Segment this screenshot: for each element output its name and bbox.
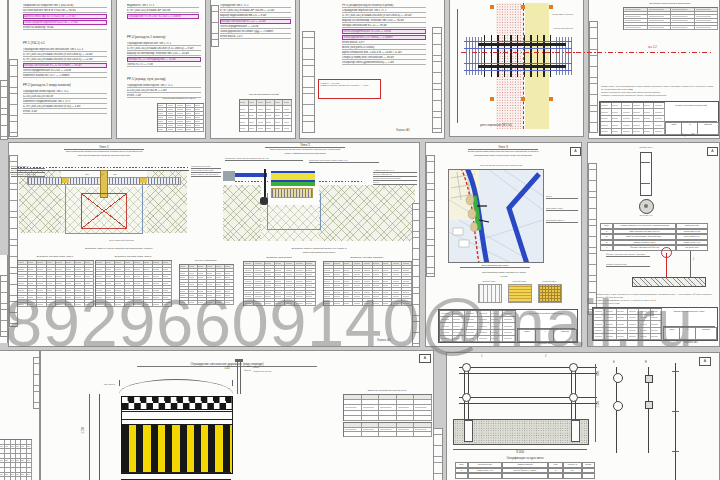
stamp-cell-strip — [432, 27, 442, 133]
dimension-column — [457, 9, 459, 123]
node1-subtitle2: тротуарной плиткой (обратная засыпка тра… — [29, 154, 179, 157]
spec-block: Ограждение переносное Тип 1 Тс 1а-787 (3… — [127, 41, 201, 67]
sheet-top-right: Ведомость потребности в материалах Приме… — [588, 0, 720, 139]
node3-subtitle: Схема расстановки элементов сигнального … — [440, 150, 566, 153]
node2-caption2: (длина определяется по месту) — [259, 251, 379, 254]
spec-line: Фонарь сигнальный ФС-12 на стойке — 36 ш… — [23, 63, 107, 68]
mini-title-block — [239, 99, 292, 132]
grid-cell — [195, 128, 204, 132]
title-block-name: Схема установки ограждений — [665, 104, 717, 122]
rail-line — [122, 419, 232, 420]
axis-label: ось 2-2 — [648, 46, 657, 49]
arc-end-tick — [119, 380, 120, 386]
red-axis-centerline — [461, 52, 711, 53]
spec-line: в 787 (306-541) и башм.-БР 340 вв — 12 ш… — [220, 9, 291, 13]
spec-line: Щиты сплошные инв. 2,0х1,6 м — 24 шт / 1… — [342, 51, 426, 55]
spec-block: Уширение а/б покрытия тип 1 (h=0,56 м)а/… — [23, 3, 107, 30]
spec-line: а-787 (306-541) и башм.180-808 (п.363-18… — [23, 58, 107, 62]
callout-label: сетка 5Вр1 100х100 — [552, 13, 582, 16]
red-note-line: 2 Длина забора (временное огражд.) — 62 … — [321, 84, 379, 87]
table-caption: Ведомость объемов (итоговая) — [323, 256, 411, 259]
detail-circle — [613, 373, 623, 383]
grid-cell — [344, 432, 362, 437]
grid-cell — [362, 416, 380, 421]
spec-block: Ограждение инвентарное Тип 2 Тс 2а-250 (… — [127, 83, 201, 98]
partial-table — [0, 439, 32, 480]
spec-line: а-250 (244-141) и 560-М — 2 шт — [127, 89, 201, 93]
spec-line: Барьер со световозвр. пленкой ЛВО 250 — … — [342, 19, 426, 23]
table-caption: Ведомость объемов работ. Этап 1 — [17, 255, 93, 258]
backfill-crossed-box — [81, 193, 127, 229]
spec-line: а-787 (306-541) и башм.180-808 (п.11-180… — [127, 47, 201, 51]
curb-block — [223, 171, 235, 181]
spec-line: а/б плотный м/з тип Б М II h=5 см — 96 м… — [23, 9, 107, 13]
swatch-scale: М 1:20 — [462, 275, 546, 278]
spec-line: Ограждение 97-ЛК 2 м; ПС-340 — 1 компл — [127, 14, 199, 19]
title-block: Схема установки ограждений Лист 3 Листов — [599, 101, 719, 136]
spec-heading: РР-5 (огражд. пути, расход) — [127, 77, 166, 81]
map-top-labels: Тротуар Линия сигнального ограждения — [454, 164, 548, 167]
cell — [468, 473, 502, 479]
dim-label: 750 — [692, 257, 695, 261]
format-label: Формат А3 — [396, 129, 410, 132]
corner-marker — [549, 5, 553, 9]
post-line — [237, 362, 238, 394]
node2-subtitle2: части с асфальтобетонным покрытием — [235, 152, 375, 155]
partial-sheet-bottom-left — [0, 350, 40, 480]
spec-block: Всего (без учета III этапа):Щиты сплошны… — [342, 45, 426, 65]
table-caption: Ведомость материалов — [243, 256, 315, 259]
cell — [582, 473, 595, 479]
grid-cell — [397, 432, 415, 437]
grid-cell — [601, 129, 612, 135]
detail-circle — [613, 401, 623, 411]
stamp-cell-strip — [426, 155, 435, 277]
node3-subtitle2: производства работ на проезжей части (по… — [440, 154, 566, 157]
swatch-label: Желтый цвет — [506, 280, 532, 283]
road-edge-blue-2 — [509, 174, 539, 262]
stamp-cell-strip — [589, 21, 598, 133]
sheet-spec-3: Ограждение тип 1 Тс 2в 787 (306-541) и б… — [210, 0, 296, 139]
dim-label: 150 — [85, 173, 89, 176]
grid-cell — [176, 128, 185, 132]
spec-line: Фонарь сигнальный ФС-12 — 24 шт — [220, 19, 291, 24]
rail-line — [122, 411, 232, 412]
joint-circle — [569, 393, 578, 402]
callout-label: Стойка ограждения — [606, 263, 650, 267]
spec-line: Фонарь сигнальный ФС-12 — 96 шт — [342, 24, 426, 28]
cell — [548, 473, 563, 479]
post-slot — [464, 420, 473, 442]
joint-circle — [462, 363, 471, 372]
trench-outline — [267, 193, 321, 230]
spec-line: Всего (без учета III этапа): — [342, 46, 426, 50]
grid-cell — [644, 129, 655, 135]
backfill-label: зона обратной засыпки — [109, 239, 169, 242]
spec-heading: РР-1 (УШ-1) п.1 — [23, 41, 45, 45]
spec-block: Ведомость Тип 1 Тс 3в 787 (306-541) и ба… — [127, 3, 199, 19]
grid-cell — [379, 432, 397, 437]
map-labels-right: ГазонПроезжая частьБортовой камень — [546, 187, 578, 223]
node2-subtitle: Узел сопряжения временного дорожного огр… — [235, 148, 375, 151]
stamp-cell-strip — [33, 357, 40, 409]
spec-line: РР-6 (общий расход по объекту в целом) — [342, 4, 426, 8]
spec-row-empty — [455, 473, 595, 479]
table-caption: Расход материалов на 1 звено — [155, 97, 203, 100]
cell — [502, 473, 549, 479]
spec-block: Ограждение тип 1 Тс 2в 787 (306-541) и б… — [220, 3, 291, 39]
height-dim-label: 1 100 — [597, 401, 600, 408]
format-corner-mark: А — [570, 147, 581, 156]
cell — [563, 473, 582, 479]
ground-hatch-right — [319, 185, 415, 241]
spec-line: Ограждение инвентарное Тип 2 Тс-1 — [23, 90, 107, 94]
spec-line: Опоры (стойки) инв. сигнальные — 48 шт — [342, 56, 426, 60]
spec-line: Ограждение тип 1 Тс 2 — [220, 4, 291, 8]
layer-green — [271, 182, 315, 186]
corner-marker — [521, 97, 525, 101]
blue-bar-line — [464, 70, 572, 71]
red-note-2: (размер по месту) — [253, 370, 299, 373]
callout-label: Борт. камень БР 100.20.8 — [191, 173, 221, 177]
post-section-circle — [639, 199, 654, 214]
grid-cell — [186, 128, 195, 132]
sheet-spec-2: Ведомость Тип 1 Тс 3в 787 (306-541) и ба… — [116, 0, 206, 139]
spec-line: а-787 (306-541) и башм.180-808 (п.349-18… — [342, 14, 426, 18]
note-paragraph: Примечание: при производстве работ вблиз… — [601, 85, 713, 97]
drawing-collage-canvas: Уширение а/б покрытия тип 1 (h=0,56 м)а/… — [0, 0, 720, 480]
grid-cell — [362, 432, 380, 437]
tick — [672, 371, 679, 372]
underlined-callout: Покрытие проезжей части (лист 7.1) — [309, 159, 379, 163]
foundation-block — [453, 419, 589, 445]
detail-label: В — [645, 361, 647, 364]
anchor-post — [264, 169, 266, 197]
spec-line: Барьер водоналивной БВ-2,0 — 8 шт — [220, 14, 291, 18]
callout-label: Грунт — [373, 181, 417, 185]
post-detail-b: Б — [611, 361, 627, 461]
site-plan-map — [448, 169, 544, 263]
anchor-foot — [260, 197, 268, 205]
spec-line: а-787 (306-541) и башм.180-808 (п.16) — … — [23, 105, 107, 109]
cell — [455, 473, 468, 479]
spec-line: Знаки дорожные (I-IV этапы) — 1 компл — [342, 35, 426, 40]
spec-line: а-787 (306-541) и башм.180-808 (п.349-18… — [23, 53, 107, 57]
grid-cell — [624, 26, 648, 30]
spec-line: Барьер со световозвр. пленкой ЛВО 250 — … — [127, 52, 201, 56]
spec-line: в 787 (306-541) и башм.-БР 340 вв — [127, 9, 199, 13]
blue-bar-line — [464, 41, 572, 42]
spec-line: Итого: 4 шт — [23, 110, 107, 114]
stamp-cell-strip — [0, 80, 8, 140]
grid-cell — [240, 126, 249, 132]
node2-labels-right: Асфальтобетон h=5Щебень фр.20-40Песок ср… — [373, 169, 417, 185]
parts-table: Поз. Наименование и техническая характер… — [600, 223, 708, 251]
dim-label: 60 — [101, 173, 104, 176]
barrier-elements-table — [343, 394, 432, 421]
section-caption: Сечение 1-1 — [626, 214, 666, 217]
grid-cell — [654, 129, 665, 135]
spec-line: Итого масса: 2,4 т — [220, 35, 291, 39]
dim-label: 150 — [113, 173, 117, 176]
detail-post-line — [675, 363, 676, 480]
yellow-black-stripe-panel — [121, 424, 233, 474]
elevation-label: отм. верха — [85, 383, 115, 386]
blue-band-left — [235, 173, 267, 177]
rail-band — [121, 408, 233, 424]
node2-caption: Ведомость замены дорожной одежды на учас… — [259, 247, 379, 250]
format-label: Формат А3 — [681, 134, 695, 137]
grid-cell — [283, 126, 292, 132]
stamp-cell-strip — [433, 428, 443, 480]
corner-marker — [549, 97, 553, 101]
watermark-text: 89296609140@mail.ru — [5, 289, 693, 357]
red-height-line — [99, 394, 100, 480]
layer-yellow — [271, 173, 315, 180]
sheet-plan-rebar: сетка 5Вр1 100х100 лента сигнальная узел… — [449, 0, 584, 137]
spec-line: Знаки дорожные по схеме ОДД — 1 компл — [220, 30, 291, 34]
table-caption: Элементы ограждения (расход ЛКМ) — [343, 389, 431, 392]
base-band — [121, 472, 231, 480]
swatch-label: Белый цвет — [476, 280, 502, 283]
grid-cell — [379, 416, 397, 421]
node1-labels-right: Сигнальная лентаПодстилающий слойБорт. к… — [191, 165, 221, 177]
spec-line: Лента оградительная ЛО-250 — 250 м — [23, 69, 107, 73]
red-lamp-ring — [661, 247, 672, 258]
post-caption: Стойка СО-1 — [624, 146, 668, 149]
spec-line: Уширение а/б покрытия тип 1 (h=0,56 м) — [23, 4, 107, 8]
grid-cell — [622, 129, 633, 135]
barrier-elements-table-2 — [343, 422, 432, 437]
drawing-caption: узел сопряжения (М 1:50) — [480, 124, 550, 127]
spec-line: Ведомость Тип 1 Тс 3 — [127, 4, 199, 8]
red-dotted-row-right — [319, 181, 363, 182]
spec-block: Ограждение переносное сигнальное Тип 1 С… — [23, 47, 107, 78]
height-dim-label: 1 200 — [82, 427, 85, 434]
joint-circle — [462, 393, 471, 402]
grid-cell — [671, 26, 695, 30]
node2-drawing: Асфальтобетон h=5Щебень фр.20-40Песок ср… — [223, 165, 419, 245]
grid-cell — [257, 126, 266, 132]
swatch-caption: Тип раскраски щитов (сигнальные цвета) — [462, 271, 546, 274]
node1-labels-left: Бортовой каменьБР 100.30.15Восстановл. п… — [11, 165, 45, 177]
spec-table: Поз. Обозначение Наименование Кол. Масса… — [455, 462, 595, 479]
site-plan-svg — [449, 170, 543, 262]
grid-cell — [648, 26, 672, 30]
grid-cell — [249, 126, 258, 132]
sheets-label: Листов — [695, 327, 717, 340]
spec-line: Генератор света (дополнительно) — 1 шт — [342, 61, 426, 65]
stamp-caption: Расход материалов (общий) — [237, 93, 291, 96]
post-slot — [571, 420, 580, 442]
blue-bar-line — [464, 63, 572, 64]
materials-table — [623, 7, 718, 30]
grid-cell — [695, 26, 719, 30]
sand-tick-band — [271, 188, 313, 198]
red-note-box: 1 Всего — 547 м22 Длина забора (временно… — [318, 79, 381, 99]
grid-cell — [414, 416, 432, 421]
stamp-cell-strip — [9, 59, 18, 137]
post-line — [240, 362, 241, 394]
grid-cell — [612, 129, 623, 135]
grid-cell — [344, 416, 362, 421]
spec-line: Щебень М800 фр.40-70 h=30 см — 29 м3 — [23, 14, 107, 19]
sheets-label: Листов — [697, 122, 719, 135]
blue-bar-line — [464, 48, 572, 49]
corner-marker — [490, 97, 494, 101]
detail-square — [645, 401, 653, 409]
post-detail-tall — [671, 359, 683, 480]
callout-label: лента сигнальная — [554, 27, 582, 30]
red-note: навес — [253, 366, 299, 369]
grid-cell — [414, 432, 432, 437]
detail-label: Б — [613, 361, 615, 364]
spec-heading: РР-4 (расход на 1 захватку) — [127, 35, 166, 39]
underlined-callout: Покрытие (тротуарная плитка) ЕР 30,9 Б — [225, 157, 303, 161]
spec-line: Ограждение переносное Тип 1 Тс 1 — [342, 9, 426, 13]
post-size: Ф57х3 — [244, 369, 256, 372]
title-block-rows — [600, 102, 665, 135]
joint-circle — [569, 363, 578, 372]
dimension-arc — [119, 379, 233, 394]
stamp-cell-strip — [211, 5, 219, 47]
spec-line: Комплект знаков по ГОСТ — 2 компл — [23, 74, 107, 78]
callout-label: Бортовой камень — [546, 219, 578, 223]
spec-line: Комплект соединительный Тип 1 Тс-У — [23, 100, 107, 104]
post-joint-line — [641, 162, 650, 163]
height-dim-line — [89, 394, 91, 480]
spec-line: а-250 (248-441) и 560-М — [23, 95, 107, 99]
map-caption: Зона производства работ — [460, 264, 530, 268]
sheet-railing: А 1 2 3 000 800 1 100 Б В — [446, 352, 720, 480]
grid-cell — [266, 126, 275, 132]
post-elevation — [640, 152, 652, 196]
rebar-chord-bottom — [478, 65, 566, 68]
callout-label: Проезжая часть — [546, 207, 578, 211]
sheet-barrier-front: А Ограждение сигнальное дорожное (вид сп… — [40, 350, 434, 480]
spec-caption: Спецификация на одно звено — [455, 457, 595, 460]
partial-sheet-edge-top-left — [0, 0, 8, 140]
format-corner-mark: А — [699, 357, 711, 366]
yellow-block — [62, 178, 69, 183]
table-caption: Ведомость объемов работ. Этап 2 — [95, 255, 171, 258]
yellow-block — [140, 178, 147, 183]
materials-table — [157, 103, 204, 132]
note-line: Разборку ограждения выполнять после устр… — [601, 94, 713, 97]
grid-cell — [167, 128, 176, 132]
sheet-spec-4: РР-6 (общий расход по объекту в целом)Ог… — [299, 0, 445, 139]
corner-marker — [521, 5, 525, 9]
post-side-detail: стойка Ф57х3 — [229, 359, 255, 395]
ground-hatch-left — [223, 185, 261, 241]
spec-line: Ограждение инвентарное Тип 2 Тс 2 — [127, 84, 201, 88]
rebar-chord-top — [478, 43, 566, 46]
dim-line — [690, 251, 692, 277]
spec-line: Лента ЛО-75 — 75 м — [127, 63, 201, 67]
node1-caption: Ведомость замены (объем обратной засыпки… — [49, 247, 189, 250]
table-caption: Ресурсы (вспомогат.) — [179, 259, 233, 262]
spec-heading: РР-2 (расход на 1 опору захватки) — [23, 83, 71, 87]
grid-cell — [397, 416, 415, 421]
spec-block: Ограждение инвентарное Тип 2 Тс-1а-250 (… — [23, 89, 107, 114]
grid-cell — [158, 128, 167, 132]
spec-line: Песок средней крупности h=20 см — 19 м3 — [23, 20, 107, 25]
sheet-spec-1: Уширение а/б покрытия тип 1 (h=0,56 м)а/… — [8, 0, 112, 139]
spec-line: Ограждение переносное Тип 1 Тс 1 — [127, 42, 201, 46]
table-caption: Ведомость потребности в материалах — [623, 2, 717, 5]
detail-square — [645, 375, 653, 383]
tick — [672, 451, 679, 452]
callout-label: Фонарь сигнальный (опорн. башмак) — [606, 253, 650, 257]
post-joint-line — [641, 183, 650, 184]
node1-subtitle: Узел сопряжения временного дорожного огр… — [29, 150, 179, 153]
callout-label: Восстановл. покрытия — [11, 173, 45, 177]
grid-cell — [275, 126, 284, 132]
callout-label: Газон — [546, 195, 578, 199]
corner-marker — [490, 5, 494, 9]
swatch-label: Желтый цвет — [536, 280, 562, 283]
section-core-dot — [644, 204, 648, 208]
width-dim-label: 3 000 — [505, 450, 535, 454]
spec-line: Лента оградительная — 120 м — [220, 25, 291, 29]
spec-line: Фонарь ФС-12 светодиодный — 16 шт — [127, 57, 201, 62]
stamp-cell-strip — [302, 31, 315, 133]
spec-line: Лента оградительная ЛО-250 — 500 м — [342, 29, 426, 34]
tick — [672, 411, 679, 412]
spec-line: Итого на захватку: 96 м2 — [23, 26, 107, 30]
height-dim-label: 800 — [597, 371, 600, 375]
post-label: стойка — [244, 365, 256, 368]
post-detail-v: В — [643, 361, 659, 461]
grid-cell — [633, 129, 644, 135]
format-corner-mark: А — [707, 147, 718, 156]
spec-block: РР-6 (общий расход по объекту в целом)Ог… — [342, 3, 426, 45]
spec-line: Ограждение переносное сигнальное Тип 1 С… — [23, 48, 107, 52]
